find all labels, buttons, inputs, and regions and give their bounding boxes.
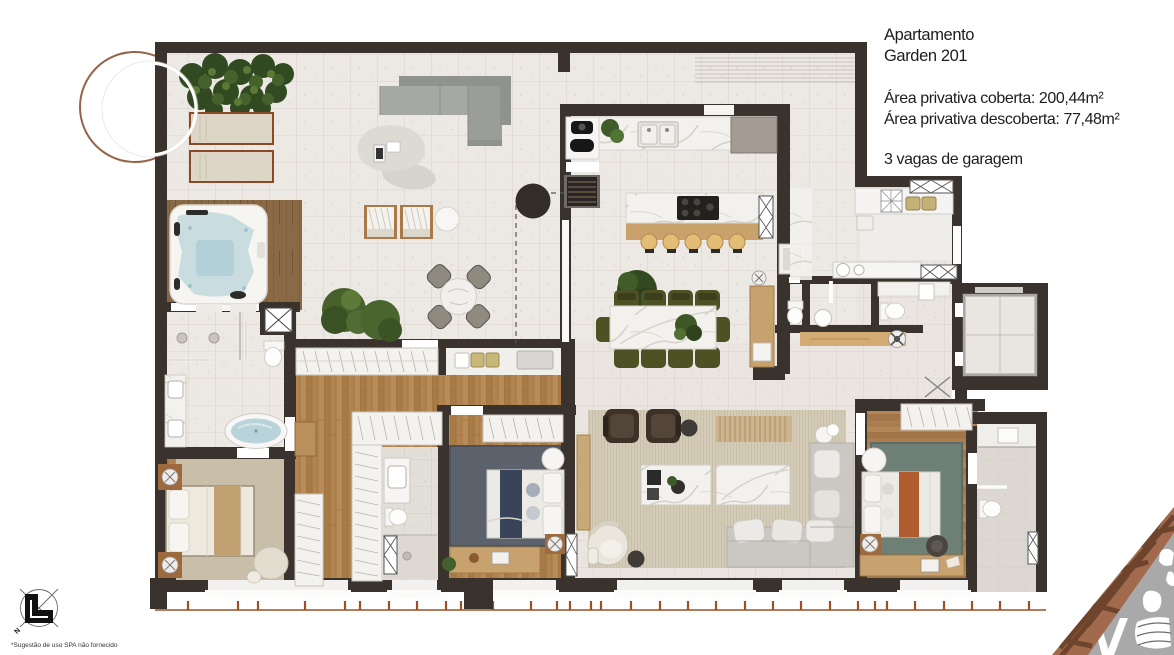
- svg-text:3 vagas de garagem: 3 vagas de garagem: [884, 151, 1023, 168]
- svg-text:Área privativa coberta: 200,44: Área privativa coberta: 200,44m²: [884, 88, 1104, 107]
- svg-text:Garden 201: Garden 201: [884, 47, 967, 65]
- svg-text:Apartamento: Apartamento: [884, 26, 974, 44]
- svg-text:Área privativa descoberta: 77,: Área privativa descoberta: 77,48m²: [884, 109, 1120, 128]
- svg-text:*Sugestão de uso SPA não forne: *Sugestão de uso SPA não fornecido: [11, 642, 118, 649]
